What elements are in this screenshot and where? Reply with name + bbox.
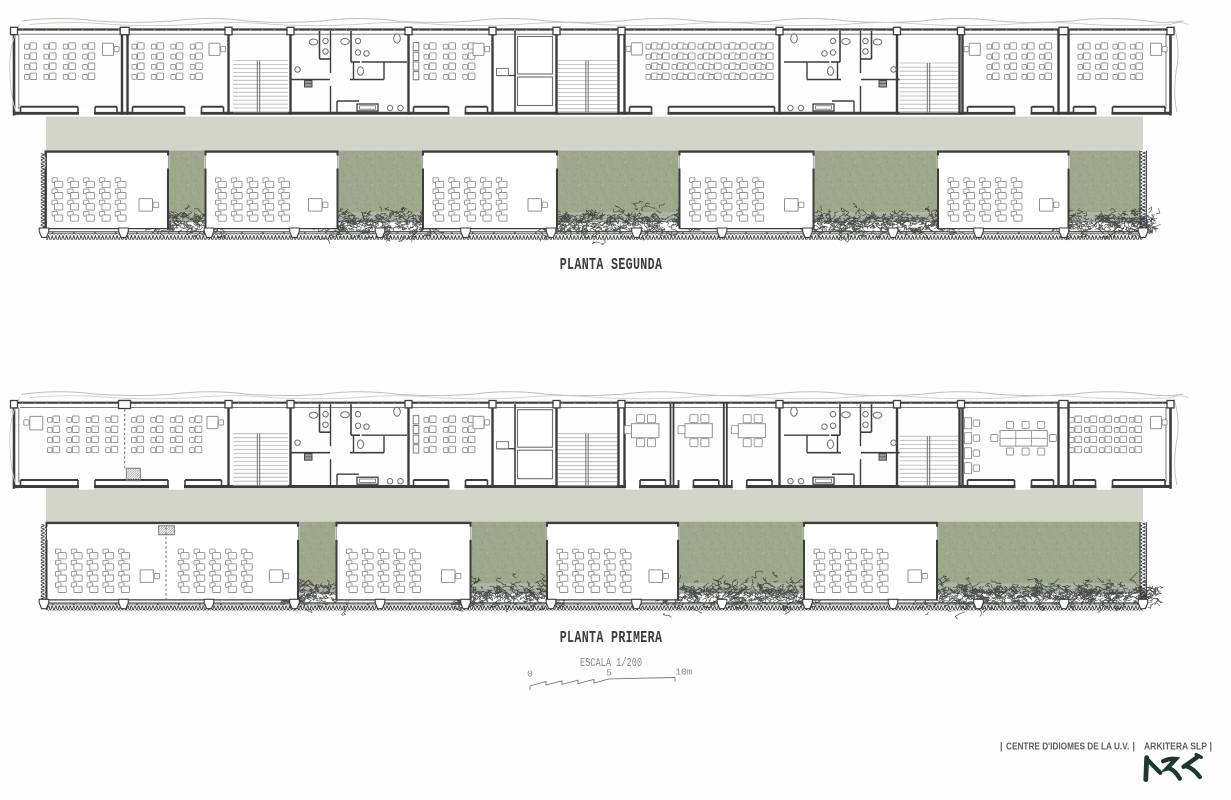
svg-text:10m: 10m (675, 667, 692, 678)
svg-text:|: | (1210, 741, 1213, 753)
svg-text:|: | (1133, 741, 1136, 753)
svg-text:PLANTA PRIMERA: PLANTA PRIMERA (560, 629, 663, 648)
svg-text:5: 5 (606, 668, 612, 679)
svg-text:0: 0 (527, 669, 533, 680)
svg-text:PLANTA SEGUNDA: PLANTA SEGUNDA (560, 256, 663, 275)
svg-text:ARKITERA SLP: ARKITERA SLP (1144, 740, 1207, 752)
svg-text:|: | (1000, 741, 1003, 753)
svg-text:CENTRE D'IDIOMES DE LA U.V.: CENTRE D'IDIOMES DE LA U.V. (1006, 741, 1129, 752)
